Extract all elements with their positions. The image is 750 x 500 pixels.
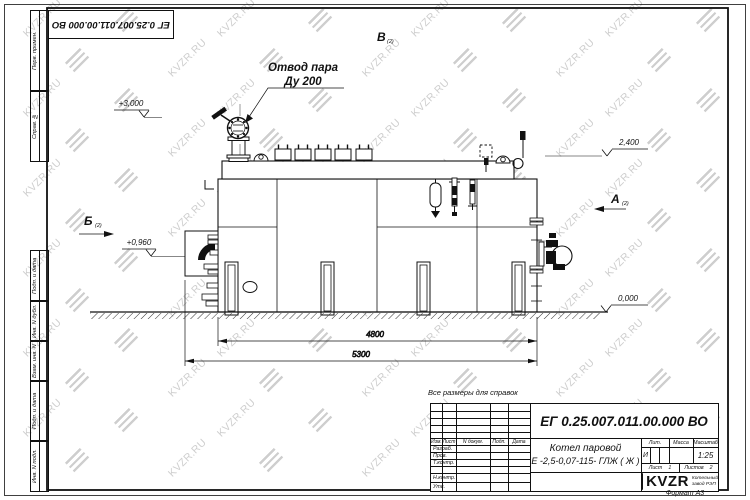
burner <box>185 180 218 306</box>
view-b-arrow-icon <box>104 231 114 237</box>
company-name: KVZR <box>646 473 689 490</box>
margin-label: Инв. N подл. <box>31 441 39 491</box>
margin-label: Справ. № <box>31 91 39 161</box>
doc-number: ЕГ 0.25.007.011.00.000 ВО <box>530 404 718 438</box>
margin-label: Перв. примен. <box>31 11 39 91</box>
col-podp: Подп. <box>490 438 508 445</box>
top-reference-stamp: ЕГ 0.25.007.011.00.000 ВО <box>48 10 174 39</box>
engineering-drawing-page: KVZR.RUKVZR.RUKVZR.RUKVZR.RUKVZR.RUKVZR.… <box>0 0 750 500</box>
view-label-a: А <box>610 192 620 206</box>
elevation-plus3000: +3,000 <box>114 99 162 118</box>
title-block: Изм. Лист N докум. Подп. Дата Разраб. Пр… <box>430 403 719 492</box>
row-razrab: Разраб. <box>431 445 463 452</box>
kvzr-logo-icon <box>641 473 643 490</box>
margin-label: Подп. и дата <box>31 251 39 301</box>
elevation-2400: 2,400 <box>545 138 648 156</box>
scale-value: 1:25 <box>693 447 718 463</box>
margin-box-inv-podl: Инв. N подл. <box>30 440 49 492</box>
margin-box-vzam-inv: Взам. инв. N <box>30 340 49 382</box>
manhole <box>243 282 257 293</box>
company-cell: KVZR Котельный завод РЭП <box>641 472 718 491</box>
leader-line <box>247 88 344 120</box>
margin-label: Инв. N дубл. <box>31 301 39 341</box>
row-prov: Пров. <box>431 452 463 459</box>
dimension-5300: 5300 <box>185 350 537 363</box>
margin-box-podp-data-2: Подп. и дата <box>30 380 49 442</box>
format-label: Формат А3 <box>640 490 730 497</box>
lit-value: И <box>641 447 650 463</box>
col-ndokum: N докум. <box>456 438 490 445</box>
margin-box-inv-dubl: Инв. N дубл. <box>30 300 49 342</box>
margin-box-sprav-no: Справ. № <box>30 90 49 162</box>
svg-text:2,400: 2,400 <box>618 138 640 147</box>
leader-arrow-icon <box>245 114 253 123</box>
sheets-cell: Листов 2 <box>679 463 718 472</box>
ground-hatch <box>90 312 608 319</box>
view-label-b: Б <box>84 214 93 228</box>
mass-label: Масса <box>669 438 693 447</box>
svg-text:+3,000: +3,000 <box>119 99 144 108</box>
view-label-v: В <box>377 30 386 44</box>
lit-label: Лит. <box>641 438 669 447</box>
callout-line1: Отвод пара <box>268 62 339 74</box>
margin-box-podp-data-1: Подп. и дата <box>30 250 49 302</box>
callout-line2: Ду 200 <box>283 76 322 88</box>
steam-outlet-callout: Отвод пара Ду 200 <box>245 62 344 123</box>
row-nkontr: Н.контр. <box>431 473 463 482</box>
sheet-cell: Лист 1 <box>641 463 679 472</box>
roof-hatches <box>275 145 372 162</box>
boiler-drum <box>222 161 514 179</box>
elevation-plus0960: +0,960 <box>122 238 185 257</box>
hidden-hatch <box>480 145 492 157</box>
company-subtitle: Котельный завод РЭП <box>692 476 718 486</box>
top-stamp-text: ЕГ 0.25.007.011.00.000 ВО <box>52 19 170 30</box>
boiler-body <box>218 161 537 312</box>
view-a-arrow-icon <box>594 206 604 212</box>
elevation-0000: 0,000 <box>601 294 648 312</box>
scale-label: Масштаб <box>693 438 718 447</box>
svg-text:+0,960: +0,960 <box>127 238 152 247</box>
view-v-sheet-ref: (2) <box>387 39 394 45</box>
margin-box-perv-primen: Перв. примен. <box>30 10 49 92</box>
row-tkontr: Т.контр. <box>431 459 463 466</box>
valve-stem <box>221 115 230 121</box>
reference-dimensions-note: Все размеры для справок <box>428 388 518 397</box>
row-utv: Утв. <box>431 482 463 491</box>
product-name: Котел паровой Е -2,5-0,07-115- ГЛЖ ( Ж ) <box>530 438 641 472</box>
view-a-sheet-ref: (2) <box>622 201 629 207</box>
svg-text:0,000: 0,000 <box>618 294 639 303</box>
col-list: Лист <box>442 438 456 445</box>
margin-label: Взам. инв. N <box>31 341 39 381</box>
col-izm: Изм. <box>431 438 442 445</box>
steam-outlet-valve <box>211 107 250 162</box>
dim-4800-value: 4800 <box>366 330 384 339</box>
product-line2: Е -2,5-0,07-115- ГЛЖ ( Ж ) <box>531 455 639 467</box>
margin-label: Подп. и дата <box>31 381 39 441</box>
dim-5300-value: 5300 <box>352 350 370 359</box>
col-data: Дата <box>508 438 530 445</box>
view-b-sheet-ref: (2) <box>95 223 102 229</box>
product-line1: Котел паровой <box>550 443 622 455</box>
